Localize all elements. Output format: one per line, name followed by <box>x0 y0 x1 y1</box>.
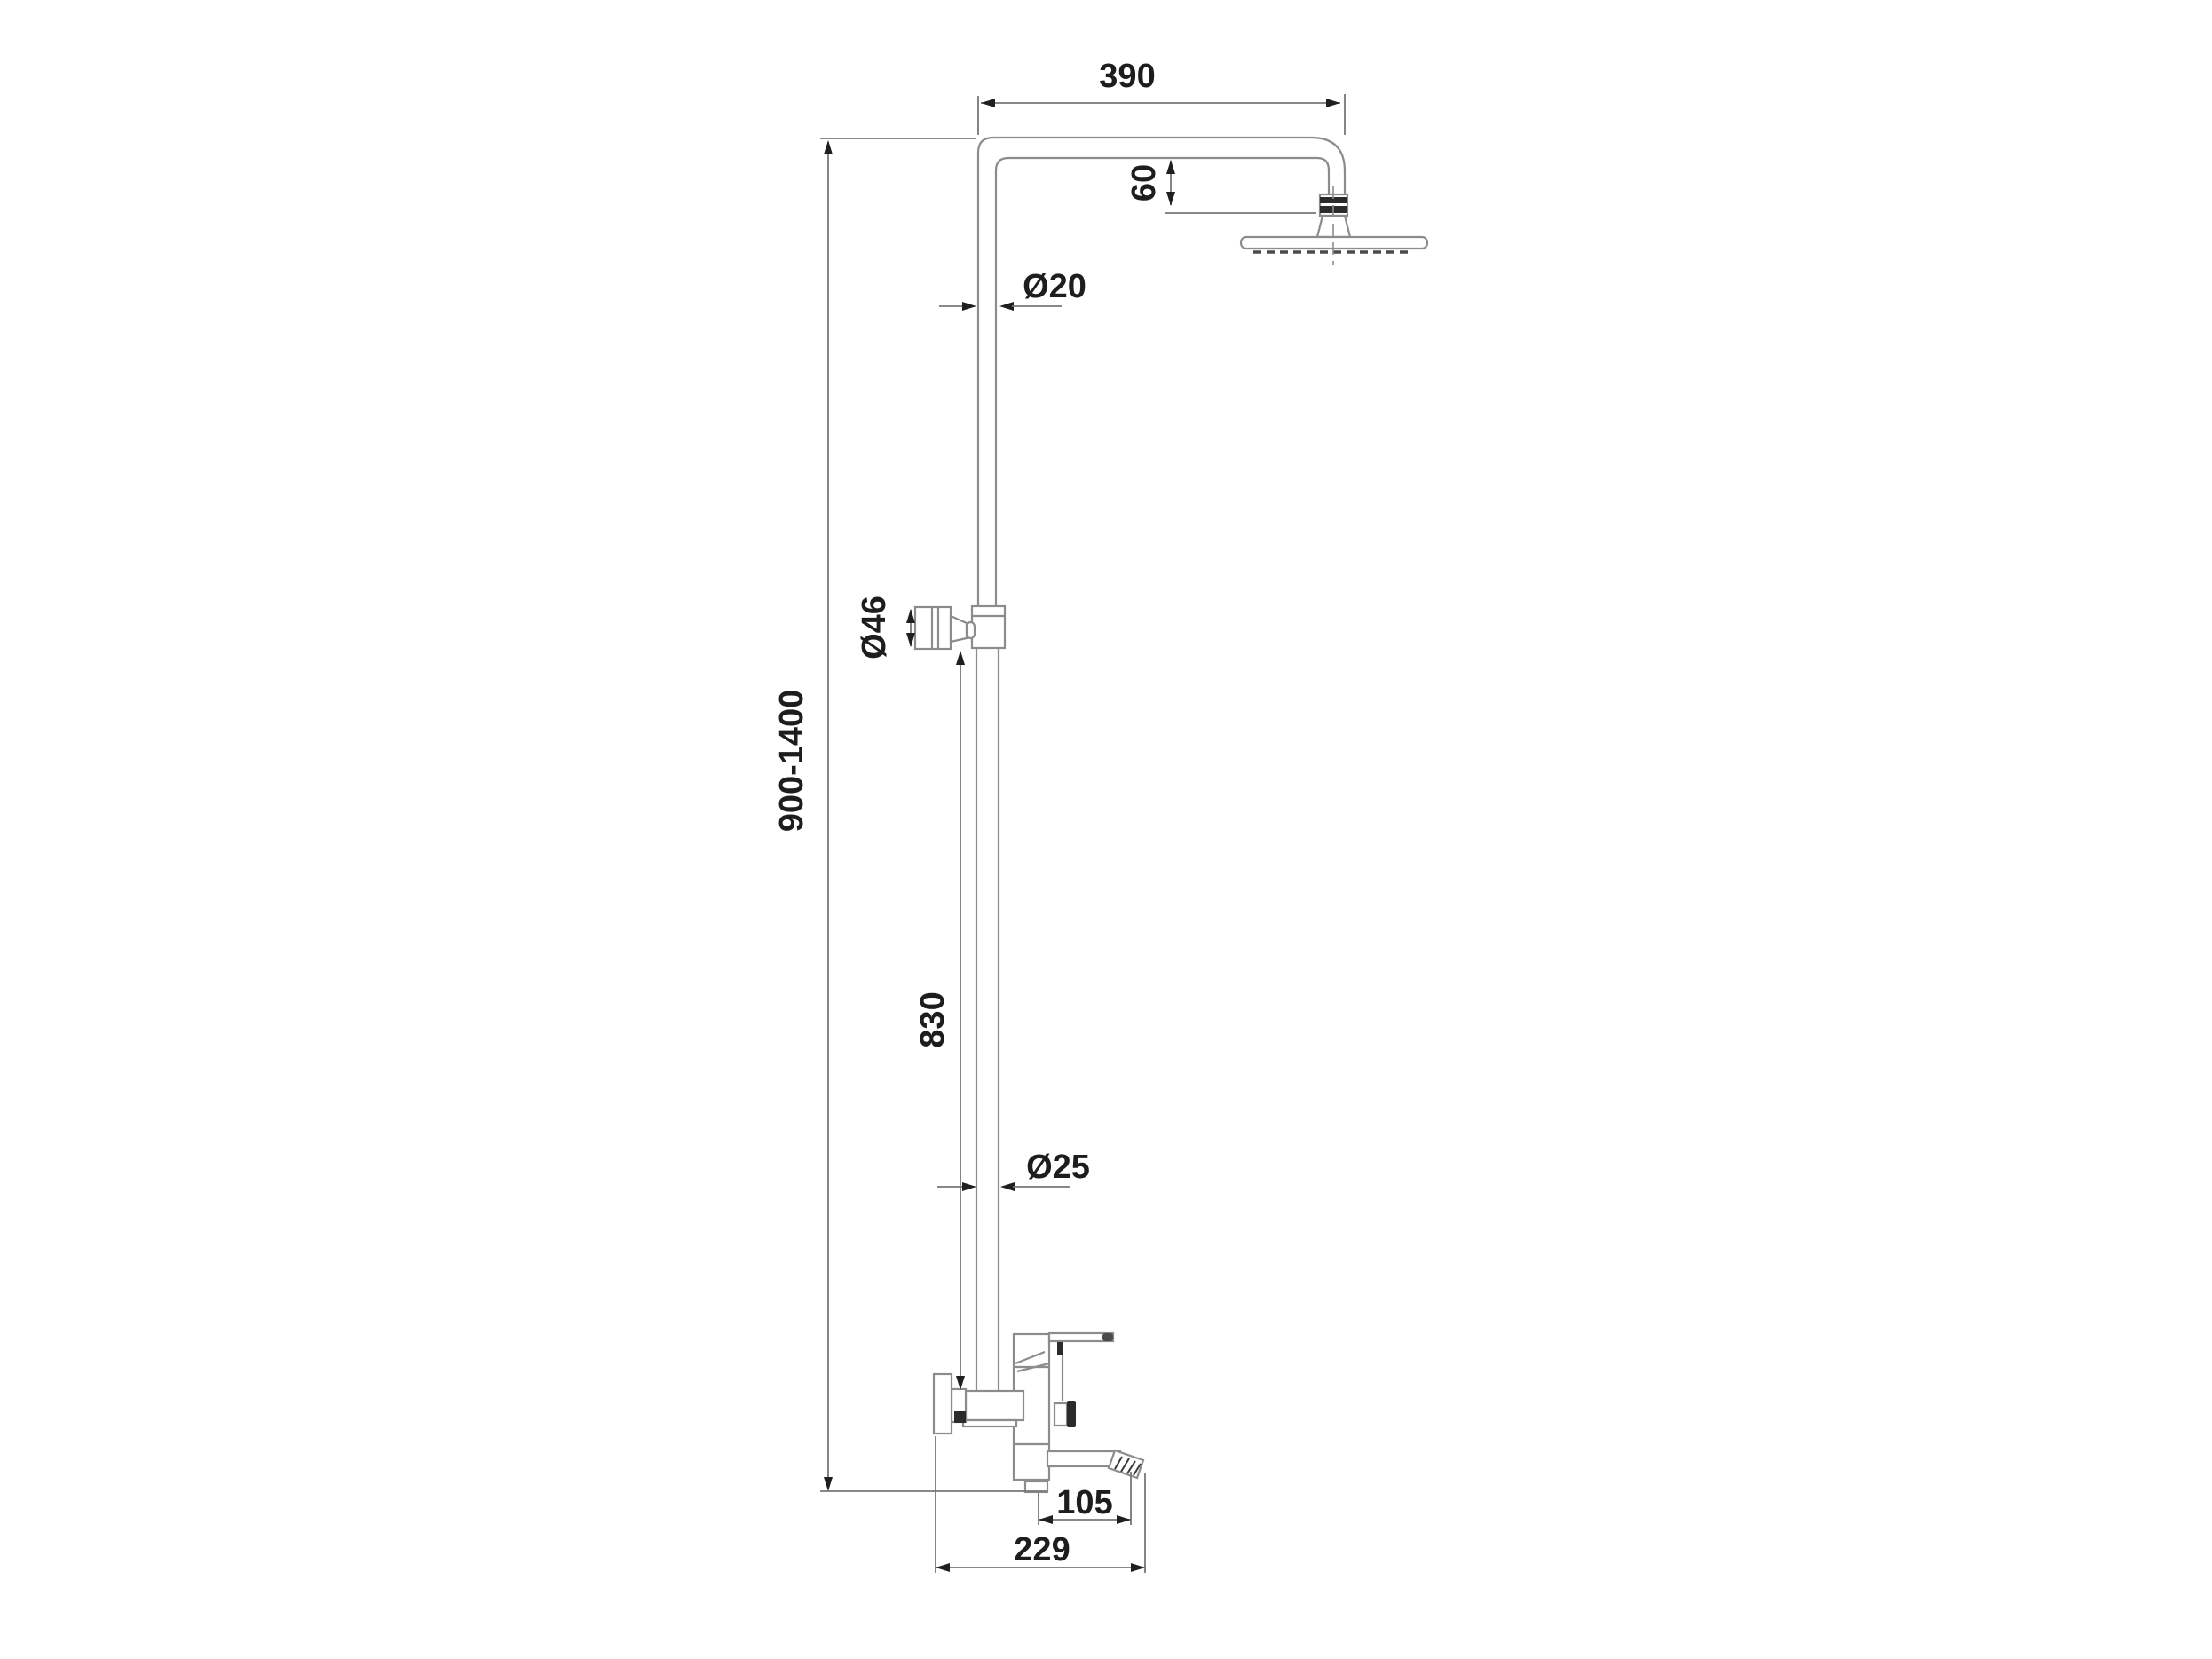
dimension-height-range: 900-1400 <box>773 138 1047 1491</box>
dimension-arm-width: 390 <box>978 58 1345 135</box>
shower-arm-and-riser <box>978 138 1345 607</box>
dim-spout-projection-label: 105 <box>1056 1484 1112 1521</box>
dim-base-depth-label: 229 <box>1014 1531 1070 1568</box>
shower-column-diagram: 390 60 Ø20 Ø46 900-1400 830 <box>0 0 2212 1659</box>
barrel-flange <box>963 1420 1016 1426</box>
dimension-head-drop: 60 <box>1126 160 1316 213</box>
wall-barrel <box>966 1391 1023 1420</box>
dim-lower-pipe-length-label: 830 <box>914 991 952 1047</box>
hand-shower-holder <box>915 606 1005 649</box>
wall-plate <box>934 1374 952 1434</box>
dimension-upper-pipe-diameter: Ø20 <box>939 268 1086 311</box>
wall-mixer <box>934 1333 1143 1492</box>
holder-block <box>972 606 1005 648</box>
overhead-shower <box>1241 186 1427 265</box>
riser-pipe-lower <box>976 649 999 1391</box>
lever-pivot <box>1057 1342 1063 1355</box>
diverter-knob <box>1067 1401 1076 1427</box>
hand-shower-cone <box>951 616 967 642</box>
holder-knob <box>967 622 975 638</box>
technical-drawing-canvas: 390 60 Ø20 Ø46 900-1400 830 <box>0 0 2212 1659</box>
diverter-stem <box>1055 1403 1067 1426</box>
dim-head-drop-label: 60 <box>1126 164 1163 201</box>
dim-arm-width-label: 390 <box>1099 58 1155 95</box>
lever-tip <box>1102 1333 1113 1341</box>
dim-lower-pipe-diameter-label: Ø25 <box>1026 1149 1090 1186</box>
dimension-lower-pipe-length: 830 <box>914 651 965 1390</box>
shower-head-disc <box>1241 237 1427 249</box>
dim-handset-diameter-label: Ø46 <box>856 596 893 660</box>
dim-height-range-label: 900-1400 <box>773 690 810 833</box>
dimension-handset-diameter: Ø46 <box>856 596 915 660</box>
dim-upper-pipe-diameter-label: Ø20 <box>1023 268 1086 305</box>
dimension-spout-projection: 105 <box>1039 1472 1131 1525</box>
